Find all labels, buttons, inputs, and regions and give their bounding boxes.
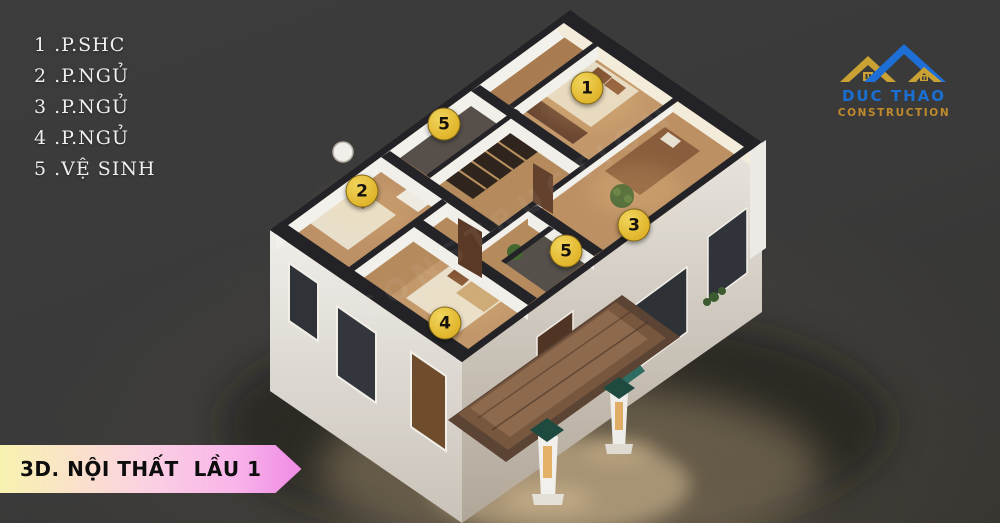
title-banner: 3D. NỘI THẤT LẦU 1	[0, 445, 302, 493]
legend-item-5: 5 .VỆ SINH	[34, 158, 156, 180]
legend-item-2: 2 .P.NGỦ	[34, 65, 156, 87]
legend-item-1: 1 .P.SHC	[34, 34, 156, 56]
room-legend: 1 .P.SHC 2 .P.NGỦ 3 .P.NGỦ 4 .P.NGỦ 5 .V…	[34, 34, 156, 189]
company-logo: DUC THAO CONSTRUCTION	[836, 40, 952, 119]
room-marker-1: 1	[571, 72, 604, 105]
parapet	[750, 140, 766, 259]
room-marker-2: 2	[346, 175, 379, 208]
room-marker-4: 4	[429, 307, 462, 340]
logo-subtitle: CONSTRUCTION	[836, 107, 952, 119]
room-marker-3: 3	[618, 209, 651, 242]
round-mirror	[333, 142, 353, 162]
legend-item-3: 3 .P.NGỦ	[34, 96, 156, 118]
room-marker-5-bottom: 5	[550, 235, 583, 268]
roofs-icon	[838, 40, 950, 86]
room-marker-5-top: 5	[428, 108, 461, 141]
legend-item-4: 4 .P.NGỦ	[34, 127, 156, 149]
banner-text: 3D. NỘI THẤT LẦU 1	[20, 457, 262, 481]
logo-company-name: DUC THAO	[836, 87, 952, 105]
poster: CONSTRUCTION 1 .P.SHC 2 .P.NGỦ 3 .P.NGỦ …	[0, 0, 1000, 523]
